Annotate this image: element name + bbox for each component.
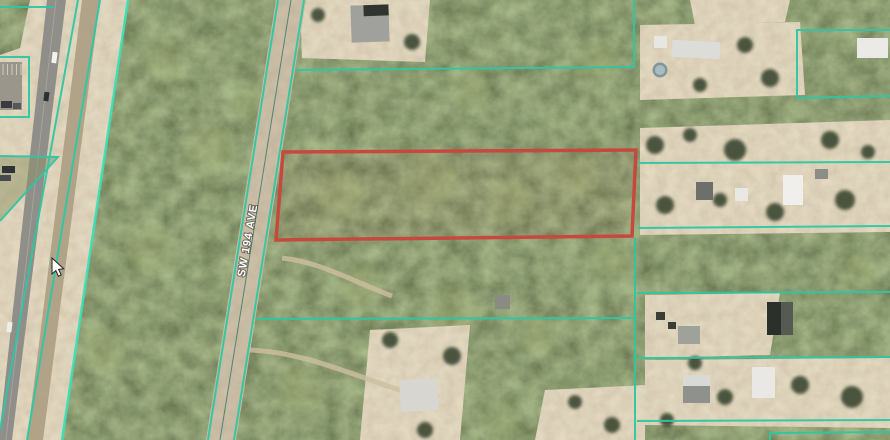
clearing-trailer-yard	[640, 22, 805, 100]
canopy-blob	[480, 400, 520, 440]
canopy-blob	[276, 366, 324, 414]
aerial-map-view[interactable]: SW 194 AVE	[0, 0, 890, 440]
boundary-line	[637, 420, 890, 421]
canopy-blob	[578, 38, 622, 82]
clearing-mid-right	[645, 293, 780, 358]
boundary-line	[637, 357, 890, 358]
map-canvas: SW 194 AVE	[0, 0, 890, 440]
tree	[646, 136, 664, 154]
parked-car	[1, 101, 12, 108]
tree	[724, 139, 746, 161]
house-top	[350, 4, 389, 42]
canopy-blob	[126, 226, 174, 274]
shed-row2-white	[735, 188, 748, 201]
shed	[654, 36, 667, 48]
boundary-line	[638, 162, 890, 163]
shed-mid	[495, 295, 510, 309]
tree	[841, 386, 863, 408]
canopy-blob	[590, 240, 630, 280]
tree	[713, 193, 727, 207]
tree	[835, 190, 855, 210]
trailer-bottom	[678, 326, 700, 344]
house-top-right	[857, 38, 888, 58]
parked-car	[13, 103, 21, 109]
parked-vehicle	[2, 166, 15, 173]
tree	[382, 332, 398, 348]
house-row2-gray	[696, 182, 713, 200]
shed-row2-gray	[815, 169, 828, 179]
small-structure	[656, 312, 665, 320]
tree	[737, 37, 753, 53]
tree	[693, 78, 707, 92]
parked-vehicle	[0, 175, 11, 181]
dark-shed-light-side	[781, 302, 793, 335]
pool-inner	[655, 65, 665, 75]
tree	[604, 417, 620, 433]
tree	[656, 196, 674, 214]
tree	[861, 145, 875, 159]
tree	[568, 395, 582, 409]
clearing-bottom-center	[535, 385, 645, 440]
house-bottom-white	[752, 367, 775, 398]
boundary-line	[257, 318, 635, 319]
clearing-right-field	[640, 120, 890, 235]
canopy-blob	[450, 70, 490, 110]
boundary-line	[637, 292, 890, 293]
tree	[311, 8, 325, 22]
canopy-blob	[143, 38, 187, 82]
canopy-blob	[83, 328, 127, 372]
tree	[443, 347, 461, 365]
tree	[683, 128, 697, 142]
tree	[404, 34, 420, 50]
mobile-home	[672, 40, 721, 59]
clearing-top-edge	[690, 0, 790, 25]
house-mid-bottom	[399, 378, 439, 412]
tree	[417, 422, 433, 438]
tree	[766, 203, 784, 221]
small-structure	[668, 322, 676, 329]
highlighted-parcel-outline[interactable]	[276, 150, 636, 240]
house-roof-dark	[363, 4, 388, 16]
building-row2-large-white	[783, 175, 803, 205]
tree	[717, 389, 733, 405]
canopy-blob	[518, 313, 562, 357]
tree	[761, 69, 779, 87]
tree	[821, 131, 839, 149]
house-bottom-gray-roofcap	[683, 375, 710, 386]
tree	[791, 376, 809, 394]
canopy-blob	[842, 252, 878, 288]
canopy-blob	[184, 124, 236, 176]
